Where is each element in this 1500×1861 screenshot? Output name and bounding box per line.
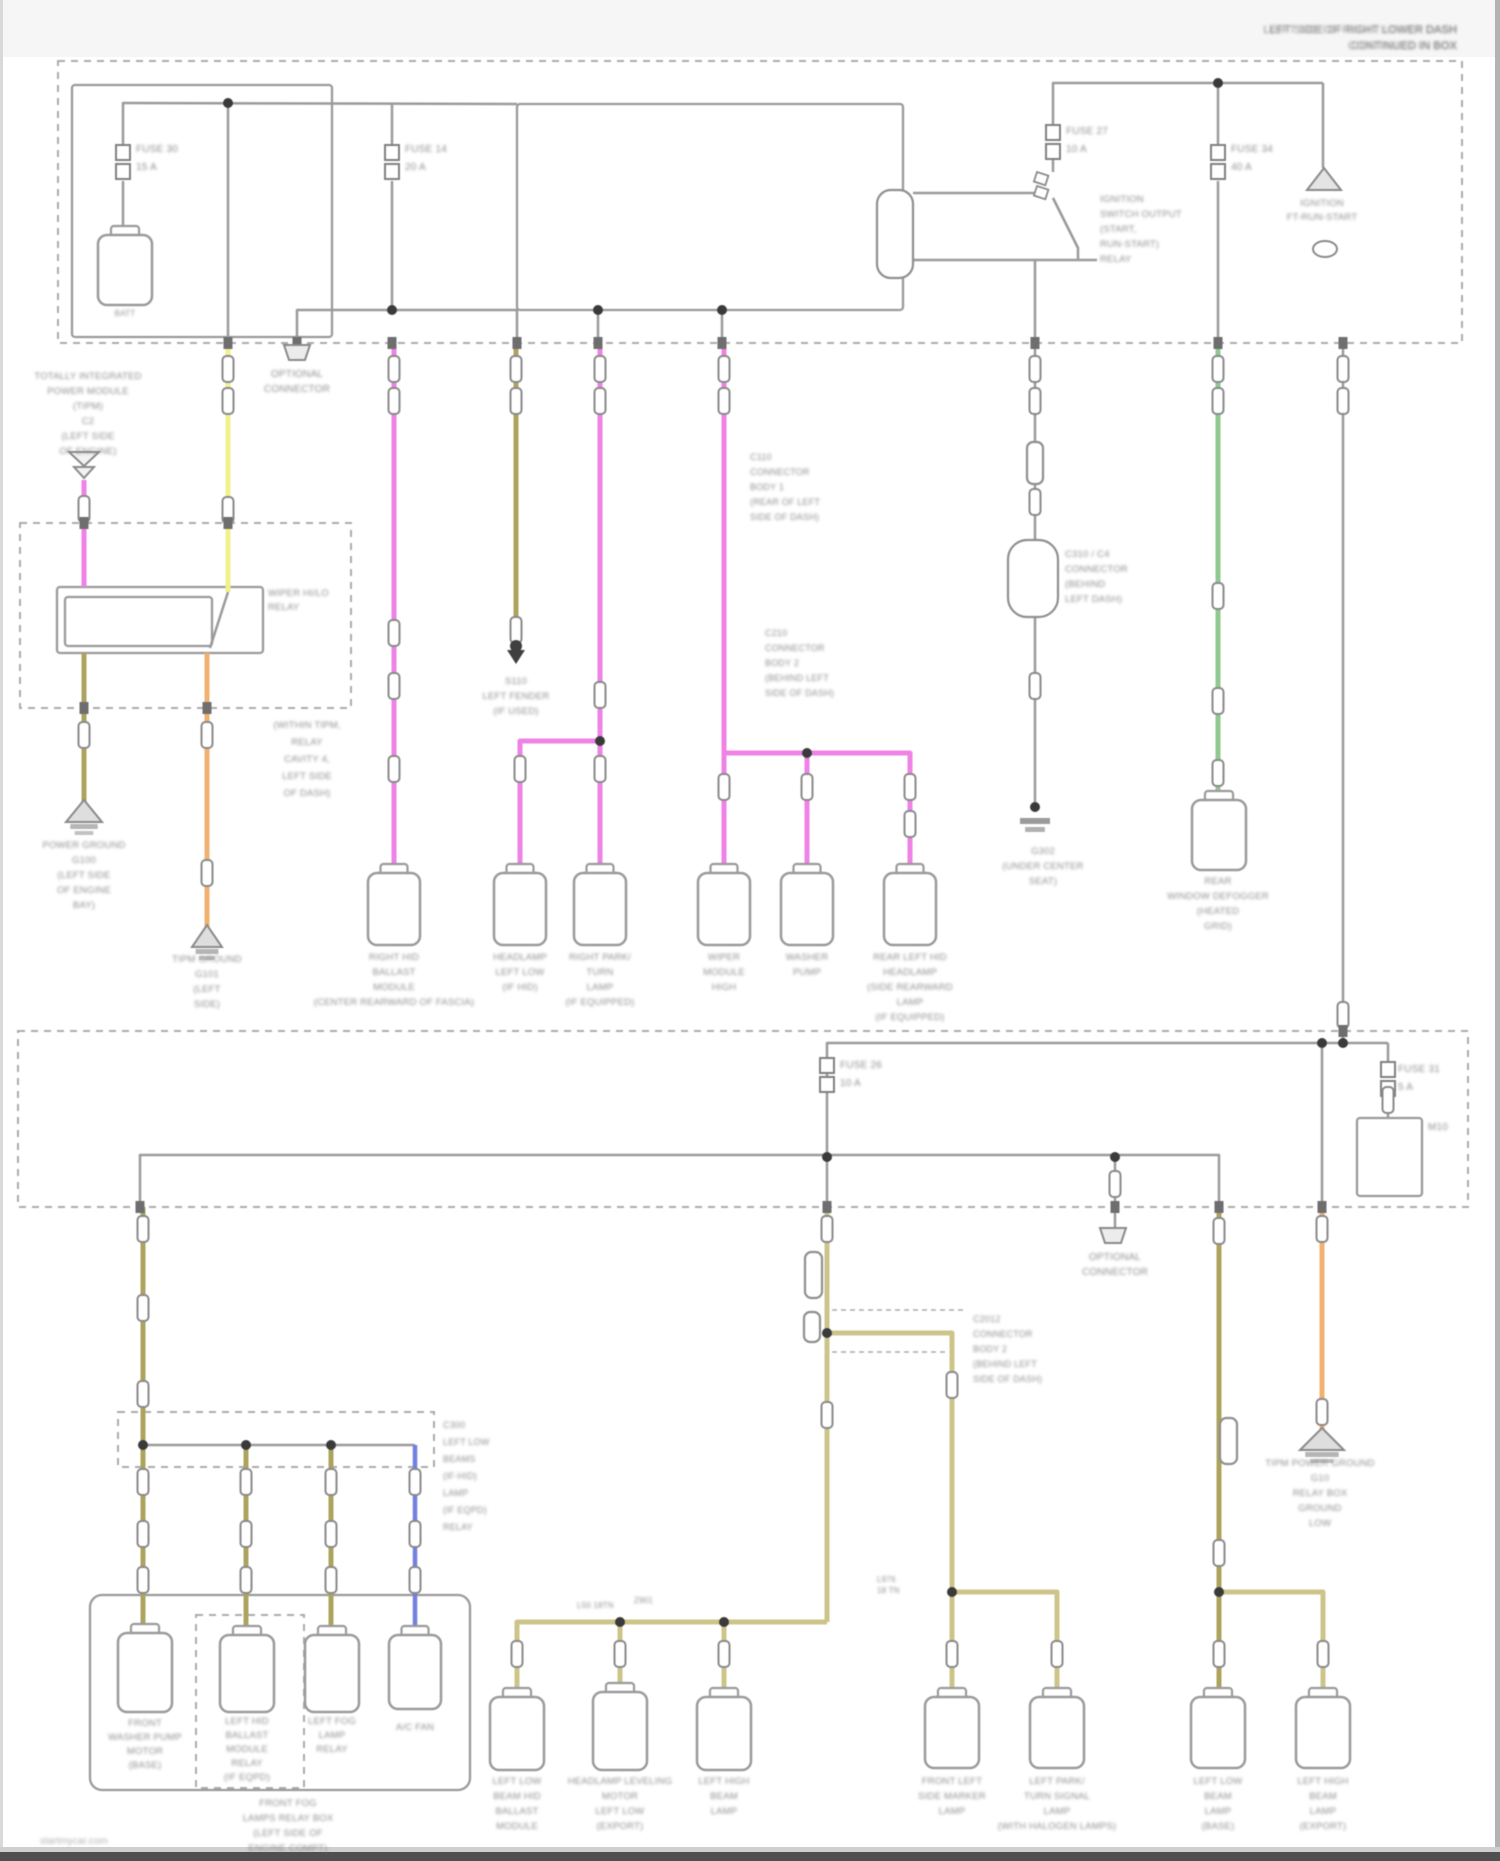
fuse-icon-5-a xyxy=(1381,1062,1395,1077)
pin-12 xyxy=(595,388,606,414)
pin-62 xyxy=(1052,1641,1063,1667)
pin-41 xyxy=(138,1295,149,1321)
pin-63 xyxy=(1214,1218,1225,1244)
pin-32 xyxy=(1338,388,1349,414)
load-e-label: REAR LEFT HIDHEADLAMP(SIDE REARWARDLAMP(… xyxy=(867,952,953,1023)
conn-ann-3: C2012CONNECTORBODY 2(BEHIND LEFTSIDE OF … xyxy=(973,1314,1042,1384)
relay-sub-label: (WITHIN TIPM,RELAYCAVITY 4,LEFT SIDEOF D… xyxy=(273,720,340,799)
wire-code-2: Z901 xyxy=(634,1596,653,1605)
inline-connector-a xyxy=(1027,442,1043,484)
pin-57 xyxy=(947,1372,958,1398)
junction-dot-17 xyxy=(719,1617,729,1627)
pin-8 xyxy=(511,356,522,382)
boundary-tick-y343-4 xyxy=(594,337,603,349)
pin-17 xyxy=(719,388,730,414)
optional-conn-1-label: OPTIONALCONNECTOR xyxy=(264,369,330,395)
boundary-tick-y1207-4 xyxy=(1318,1201,1327,1213)
load-m3-label: LEFT HIGHBEAMLAMP xyxy=(698,1776,749,1817)
load-a2-label: HEADLAMPLEFT LOW(IF HID) xyxy=(493,952,547,993)
load-r3 xyxy=(1191,1697,1245,1768)
pin-21 xyxy=(905,811,916,837)
wire-gray-11 xyxy=(1053,83,1323,125)
load-d-label: WASHERPUMP xyxy=(786,952,829,978)
load-b xyxy=(574,873,626,945)
green-load-label: REARWINDOW DEFOGGER(HEATEDGRID) xyxy=(1167,876,1269,932)
boundary-tick-y343-8 xyxy=(1339,337,1348,349)
load-l3 xyxy=(305,1635,359,1712)
watermark: startmycar.com xyxy=(40,1836,108,1847)
fuse-icon-2-a xyxy=(1046,125,1060,140)
boundary-tick-y343-3 xyxy=(513,337,522,349)
wire-pink-33 xyxy=(724,753,910,873)
tipm-main-box xyxy=(517,104,903,310)
wire-tan-49 xyxy=(827,1333,952,1697)
boundary-tick-y343-0 xyxy=(224,337,233,349)
conn-ann-7line: C300LEFT LOWBEAMS(IF-HID)LAMP(IF EQPD)RE… xyxy=(443,1420,490,1532)
pin-27 xyxy=(1213,388,1224,414)
pin-0 xyxy=(223,356,234,382)
load-m2 xyxy=(593,1692,647,1770)
wire-tan-46 xyxy=(517,1622,827,1697)
load-r2 xyxy=(1030,1697,1084,1768)
junction-dot-3 xyxy=(717,305,727,315)
pin-61 xyxy=(719,1641,730,1667)
pin-10 xyxy=(511,617,522,643)
pin-24 xyxy=(1030,489,1041,515)
boundary-tick-y1207-2 xyxy=(1111,1201,1120,1213)
load-a2 xyxy=(494,873,546,945)
pin-51 xyxy=(326,1567,337,1593)
boundary-tick-y1031-0 xyxy=(1339,1025,1348,1037)
wire-gray-13 xyxy=(1053,198,1078,260)
pin-22 xyxy=(1030,356,1041,382)
fuse-icon-0-a xyxy=(116,145,130,160)
pin-15 xyxy=(515,756,526,782)
inline-connector-tick-1 xyxy=(1034,186,1049,199)
wire-pink-31 xyxy=(520,741,600,873)
pin-14 xyxy=(595,756,606,782)
optional-connector-1 xyxy=(284,345,310,360)
pin-65 xyxy=(1214,1641,1225,1667)
pin-25 xyxy=(1030,673,1041,699)
fuse-34-label: FUSE 3440 A xyxy=(1231,144,1273,173)
boundary-tick-y1207-0 xyxy=(136,1201,145,1213)
junction-dot-11 xyxy=(1338,1038,1348,1048)
pin-38 xyxy=(1383,1087,1394,1113)
pin-36 xyxy=(202,722,213,748)
pin-18 xyxy=(719,774,730,800)
relay-coil-box xyxy=(65,597,212,646)
load-r4 xyxy=(1296,1697,1350,1768)
power-ref-triangle xyxy=(1307,168,1341,190)
fuse-icon-3-a xyxy=(1211,145,1225,160)
fuse-icon-4-b xyxy=(820,1077,834,1092)
optional-conn-2-label: OPTIONALCONNECTOR xyxy=(1082,1252,1148,1278)
junction-dot-14 xyxy=(241,1440,251,1450)
boundary-tick-y343-5 xyxy=(718,337,727,349)
load-l2 xyxy=(220,1635,274,1712)
fuse-icon-1-b xyxy=(385,164,399,179)
conn-ann-2: C210CONNECTORBODY 2(BEHIND LEFTSIDE OF D… xyxy=(765,628,834,698)
fuse-14-label: FUSE 1420 A xyxy=(405,144,447,173)
inline-connector-b xyxy=(805,1252,822,1298)
relay-box-dashed xyxy=(20,523,351,708)
relay-label: WIPER HI/LORELAY xyxy=(268,588,329,613)
junction-dot-4 xyxy=(1213,78,1223,88)
pin-37 xyxy=(202,860,213,886)
load-l2-label: LEFT HIDBALLASTMODULERELAY(IF EQPD) xyxy=(224,1716,270,1783)
ground-orange2-label: TIPM POWER GROUNDG10RELAY BOXGROUNDLOW xyxy=(1265,1458,1374,1529)
load-m1 xyxy=(490,1697,544,1770)
chassis-gnd-label: G302(UNDER CENTERSEAT) xyxy=(1002,846,1083,887)
body-connector xyxy=(1008,540,1058,617)
junction-dot-9 xyxy=(1110,1152,1120,1162)
wire-tan-52 xyxy=(1219,1592,1323,1697)
boundary-tick-y523-1 xyxy=(224,517,233,529)
ground-left-label: POWER GROUNDG100(LEFT SIDEOF ENGINEBAY) xyxy=(42,840,125,911)
pin-5 xyxy=(389,620,400,646)
pin-54 xyxy=(410,1567,421,1593)
battery-label: BATT xyxy=(115,309,136,318)
pin-28 xyxy=(1213,583,1224,609)
ground-left-bar2 xyxy=(75,831,94,835)
junction-dot-1 xyxy=(387,305,397,315)
pin-9 xyxy=(511,388,522,414)
conn-ann-1: C110CONNECTORBODY 1(REAR OF LEFTSIDE OF … xyxy=(750,452,820,522)
wire-gray-1 xyxy=(123,103,517,145)
pin-66 xyxy=(1318,1641,1329,1667)
junction-dot-15 xyxy=(326,1440,336,1450)
pin-35 xyxy=(79,722,90,748)
junction-dot-13 xyxy=(138,1440,148,1450)
pin-68 xyxy=(1317,1399,1328,1425)
chassis-ground-bar2 xyxy=(1025,827,1045,832)
load-b-label: RIGHT PARK/TURNLAMP(IF EQUIPPED) xyxy=(565,952,634,1008)
pin-39 xyxy=(1110,1171,1121,1197)
pin-55 xyxy=(822,1216,833,1242)
splice-arrow xyxy=(507,650,525,664)
pin-4 xyxy=(389,388,400,414)
title-text-2: CONTINUED IN BOX xyxy=(1351,40,1457,52)
optional-connector-2 xyxy=(1100,1228,1126,1243)
fuse-icon-0-b xyxy=(116,164,130,179)
pin-1 xyxy=(223,388,234,414)
pin-60 xyxy=(615,1641,626,1667)
load-r4-label: LEFT HIGHBEAMLAMP(EXPORT) xyxy=(1297,1776,1348,1832)
pin-19 xyxy=(802,774,813,800)
load-l3-label: LEFT FOGLAMPRELAY xyxy=(308,1716,356,1755)
boundary-tick-y708-0 xyxy=(80,702,89,714)
load-m2-label: HEADLAMP LEVELINGMOTORLEFT LOW(EXPORT) xyxy=(568,1776,673,1832)
junction-dot-6 xyxy=(802,748,812,758)
pin-16 xyxy=(719,356,730,382)
load-r1-label: FRONT LEFTSIDE MARKERLAMP xyxy=(918,1776,986,1817)
chevron-connector-2 xyxy=(74,467,94,478)
ground-orange-2 xyxy=(1300,1428,1344,1450)
load-r3-label: LEFT LOWBEAMLAMP(BASE) xyxy=(1194,1776,1243,1832)
pin-53 xyxy=(410,1521,421,1547)
pin-52 xyxy=(410,1469,421,1495)
fuse-icon-1-a xyxy=(385,145,399,160)
pin-50 xyxy=(326,1521,337,1547)
wire-gray-19 xyxy=(827,1043,1388,1157)
ground-left-bar1 xyxy=(70,824,97,829)
pin-33 xyxy=(1338,1002,1349,1028)
inline-connector-d xyxy=(1220,1418,1237,1464)
load-l4-label: A/C FAN xyxy=(396,1722,434,1733)
pin-67 xyxy=(1317,1216,1328,1242)
inline-connector-tick-0 xyxy=(1034,172,1049,185)
load-l1 xyxy=(118,1633,172,1712)
junction-dot-7 xyxy=(1030,802,1040,812)
boundary-tick-y1207-1 xyxy=(823,1201,832,1213)
fuse-icon-2-b xyxy=(1046,144,1060,159)
wire-gray-21 xyxy=(140,1155,1219,1207)
wire-code-1: L50 18TN xyxy=(577,1601,614,1610)
pin-11 xyxy=(595,356,606,382)
boundary-tick-y708-1 xyxy=(203,702,212,714)
boundary-tick-y523-0 xyxy=(80,517,89,529)
pin-46 xyxy=(241,1469,252,1495)
load-l4 xyxy=(389,1635,441,1709)
tipm-edge-connector xyxy=(877,190,913,278)
wiring-diagram-page: LEFT SIDE OF RIGHT LOWER DASHCONTINUED I… xyxy=(0,0,1500,1861)
boundary-tick-y343-7 xyxy=(1214,337,1223,349)
load-e xyxy=(884,873,936,945)
load-green xyxy=(1192,800,1246,870)
junction-dot-8 xyxy=(822,1152,832,1162)
fuse-27-label: FUSE 2710 A xyxy=(1066,126,1108,155)
boundary-tick-y343-2 xyxy=(388,337,397,349)
boundary-tick-y1207-3 xyxy=(1215,1201,1224,1213)
load-r1 xyxy=(925,1697,979,1768)
pin-56 xyxy=(822,1402,833,1428)
pin-59 xyxy=(512,1641,523,1667)
junction-dot-18 xyxy=(947,1587,957,1597)
junction-dot-16 xyxy=(615,1617,625,1627)
pin-48 xyxy=(241,1567,252,1593)
pin-29 xyxy=(1213,688,1224,714)
pin-26 xyxy=(1213,356,1224,382)
load-r2-label: LEFT PARK/TURN SIGNALLAMP(WITH HALOGEN L… xyxy=(998,1776,1117,1832)
wire-tan-50 xyxy=(952,1592,1057,1697)
pin-7 xyxy=(389,756,400,782)
pin-58 xyxy=(947,1641,958,1667)
boundary-tick-y343-6 xyxy=(1031,337,1040,349)
ground-left xyxy=(66,800,102,822)
battery xyxy=(98,235,152,305)
ground-orange xyxy=(192,925,222,947)
ignition-relay-label: IGNITIONSWITCH OUTPUT(START,RUN-START)RE… xyxy=(1100,194,1182,265)
fusebox-lower xyxy=(18,1031,1468,1207)
load-m1-label: LEFT LOWBEAM HIDBALLASTMODULE xyxy=(493,1776,542,1832)
junction-dot-2 xyxy=(593,305,603,315)
pin-47 xyxy=(241,1521,252,1547)
junction-dot-5 xyxy=(595,736,605,746)
ground-orange-2-bar1 xyxy=(1305,1452,1338,1457)
pin-45 xyxy=(138,1567,149,1593)
fuse-icon-4-a xyxy=(820,1058,834,1073)
power-ref-oval xyxy=(1313,241,1337,257)
lower-module-box xyxy=(1357,1118,1422,1196)
pin-6 xyxy=(389,673,400,699)
wire-code-3: L97618 TN xyxy=(877,1575,900,1595)
inline-connector-c xyxy=(804,1312,820,1342)
junction-dot-12 xyxy=(822,1328,832,1338)
junction-dot-0 xyxy=(223,98,233,108)
load-a-label: RIGHT HIDBALLASTMODULE(CENTER REARWARD O… xyxy=(314,952,475,1008)
pin-13 xyxy=(595,682,606,708)
connector-annotation-box xyxy=(118,1412,434,1467)
wire-gray-5 xyxy=(297,310,517,343)
cluster-label: FRONT FOGLAMPS RELAY BOX(LEFT SIDE OFENG… xyxy=(243,1798,334,1854)
load-l1-label: FRONTWASHER PUMPMOTOR(BASE) xyxy=(108,1718,182,1771)
load-c xyxy=(698,873,750,945)
pin-49 xyxy=(326,1469,337,1495)
fuse-31-label: FUSE 315 A xyxy=(1398,1064,1440,1093)
pin-64 xyxy=(1214,1540,1225,1566)
fuse-26-label: FUSE 2610 A xyxy=(840,1060,882,1089)
load-m3 xyxy=(697,1697,751,1770)
power-ref-label: IGNITIONFT-RUN-START xyxy=(1287,198,1358,223)
load-c-label: WIPERMODULEHIGH xyxy=(703,952,745,993)
load-d xyxy=(781,873,833,945)
module-label: M10 xyxy=(1428,1122,1448,1133)
fuse-30-label: FUSE 3015 A xyxy=(136,144,178,173)
pin-40 xyxy=(138,1216,149,1242)
fuse-icon-3-b xyxy=(1211,164,1225,179)
pin-30 xyxy=(1213,760,1224,786)
pin-23 xyxy=(1030,388,1041,414)
pin-31 xyxy=(1338,356,1349,382)
junction-dot-10 xyxy=(1317,1038,1327,1048)
junction-dot-19 xyxy=(1214,1587,1224,1597)
pin-3 xyxy=(389,356,400,382)
pin-20 xyxy=(905,774,916,800)
chassis-ground-bar1 xyxy=(1020,818,1050,824)
splice-label: S110LEFT FENDER(IF USED) xyxy=(483,676,550,717)
title-text-1: LEFT SIDE OF RIGHT LOWER DASH xyxy=(1269,24,1457,36)
pin-43 xyxy=(138,1469,149,1495)
wiring-diagram-canvas: LEFT SIDE OF RIGHT LOWER DASHCONTINUED I… xyxy=(0,0,1500,1861)
pin-44 xyxy=(138,1521,149,1547)
pin-42 xyxy=(138,1381,149,1407)
ground-orange-label: TIPM GROUNDG101(LEFTSIDE) xyxy=(172,954,242,1010)
body-conn-label: C310 / C4CONNECTOR(BEHINDLEFT DASH) xyxy=(1065,549,1128,605)
load-a xyxy=(368,873,420,945)
tipm-label: TOTALLY INTEGRATEDPOWER MODULE(TIPM)C2(L… xyxy=(34,371,141,457)
